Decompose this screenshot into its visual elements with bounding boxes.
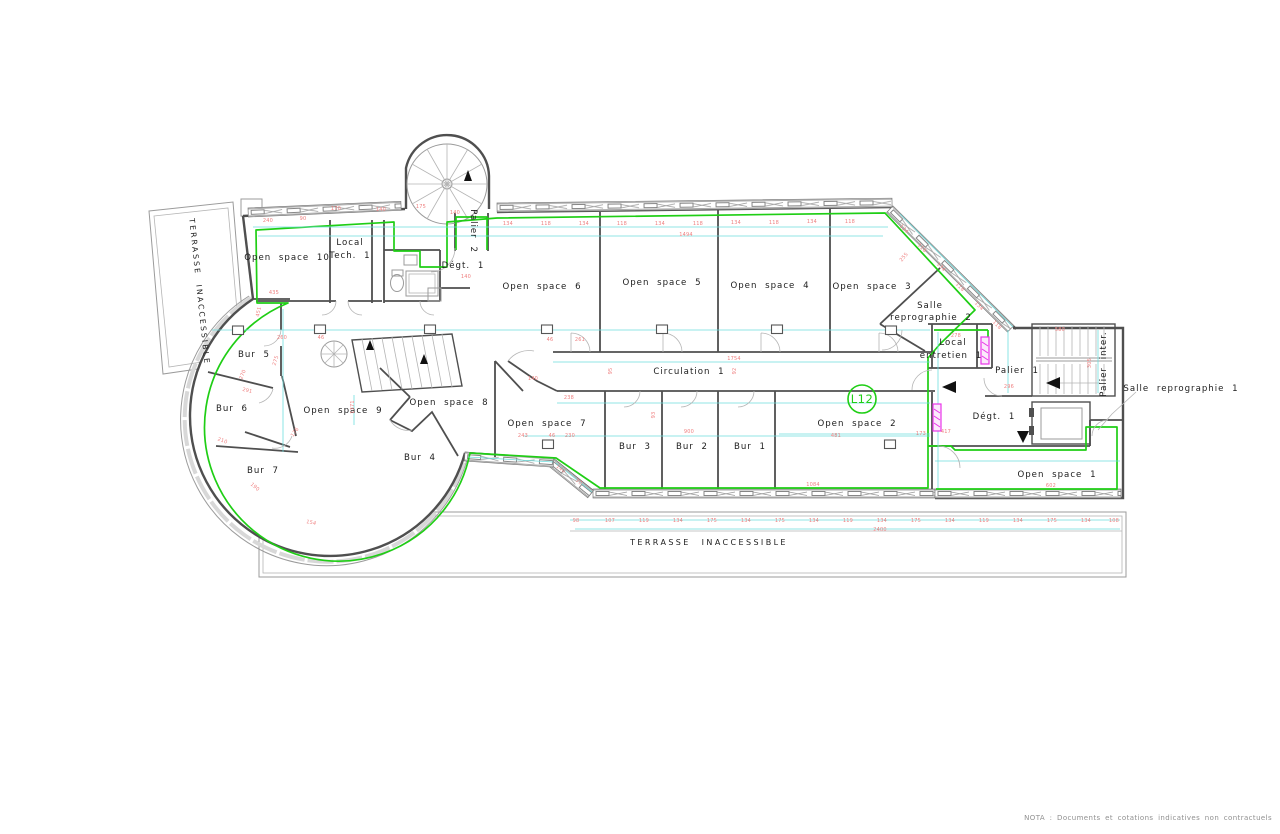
label-bur-6: Bur 6 [216, 404, 248, 414]
label-degagement-1: Dégt. 1 [973, 411, 1016, 422]
dim-label: 134 [503, 221, 513, 227]
dim-label: 173 [916, 431, 926, 437]
dim-label: 119 [639, 518, 649, 524]
stair-direction-arrow-tower [464, 170, 472, 181]
dim-label: 175 [775, 518, 785, 524]
label-degagement-2: Dégt. 1 [442, 260, 485, 271]
label-terrasse-inaccessible-left: TERRASSE INACCESSIBLE [187, 217, 211, 366]
dim-label: 134 [945, 518, 955, 524]
label-palier-1: Palier 1 [995, 366, 1039, 376]
dim-label: 93 [651, 412, 657, 419]
lift-door-mark-1 [1029, 408, 1034, 417]
column [885, 440, 896, 449]
dim-label: 260 [277, 335, 287, 341]
label-palier-inter: Palier inter. [1099, 331, 1109, 396]
dim-label: 481 [831, 433, 841, 439]
column [772, 325, 783, 334]
counter [406, 271, 438, 296]
dim-label: 175 [911, 518, 921, 524]
door-arc-os8 [508, 350, 534, 361]
label-open-space-7: Open space 7 [507, 419, 586, 429]
window-band-bottom-1 [593, 489, 935, 498]
column [542, 325, 553, 334]
column [543, 440, 554, 449]
dim-label: 118 [845, 219, 855, 225]
dim-label: 118 [769, 220, 779, 226]
dim-label: 305 [1087, 358, 1093, 368]
dim-label: 1494 [679, 232, 693, 238]
label-bur-3: Bur 3 [619, 442, 651, 452]
dim-label: 175 [707, 518, 717, 524]
label-open-space-2: Open space 2 [817, 419, 896, 429]
floor-plan-svg: Open space 10LocalTech. 1Dégt. 1Palier 2… [0, 0, 1280, 834]
label-local-entretien-1-line1: Local [939, 338, 966, 348]
column [233, 326, 244, 335]
dim-label: 140 [450, 210, 460, 216]
column [657, 325, 668, 334]
nota-text: NOTA : Documents et cotations indicative… [1024, 814, 1272, 822]
entry-arrow-left [942, 381, 956, 393]
dim-label: 602 [1046, 483, 1056, 489]
cabinet [428, 288, 441, 301]
dim-label: 118 [617, 221, 627, 227]
label-terrasse-inaccessible-bottom: TERRASSE INACCESSIBLE [629, 538, 788, 547]
label-l12-badge: L12 [851, 392, 874, 406]
window-band-bottom-2 [935, 489, 1121, 498]
door-arcs-right [882, 330, 1108, 468]
label-open-space-4: Open space 4 [730, 281, 809, 291]
label-open-space-3: Open space 3 [832, 282, 911, 292]
dim-label: 118 [541, 221, 551, 227]
dim-label: 119 [843, 518, 853, 524]
dim-label: 107 [605, 518, 615, 524]
wall-stair-tower [406, 135, 489, 209]
dim-label: 140 [461, 274, 471, 280]
toilet-fixture [391, 275, 404, 292]
label-bur-1: Bur 1 [734, 442, 766, 452]
dim-label: 98 [573, 518, 580, 524]
label-open-space-6: Open space 6 [502, 282, 581, 292]
dim-label: 2400 [873, 527, 887, 533]
label-open-space-1: Open space 1 [1017, 470, 1096, 480]
label-open-space-9: Open space 9 [303, 406, 382, 416]
label-bur-5: Bur 5 [238, 350, 270, 360]
label-bur-2: Bur 2 [676, 442, 708, 452]
door-arcs-corridor-top [571, 333, 898, 352]
dim-label: 435 [269, 290, 279, 296]
door-arc-os2 [912, 370, 932, 390]
dim-label: 118 [693, 221, 703, 227]
dim-label: 261 [575, 337, 585, 343]
main-stair-treads [362, 334, 452, 391]
dim-label: 134 [807, 219, 817, 225]
dim-label: 134 [741, 518, 751, 524]
dim-label: 175 [416, 204, 426, 210]
dim-label: 95 [608, 368, 614, 375]
dim-label: 417 [941, 429, 951, 435]
dim-label: 175 [1047, 518, 1057, 524]
label-local-entretien-1-line2: entretien 1 [920, 351, 982, 361]
dim-label: 238 [564, 395, 574, 401]
column [425, 325, 436, 334]
leader-line-salle-repro-1 [1098, 392, 1136, 430]
window-band-top-main [497, 198, 892, 212]
door-arcs-bur [624, 391, 754, 407]
dim-label: 46 [549, 433, 556, 439]
fixtures-layer [391, 255, 442, 301]
label-bur-7: Bur 7 [247, 466, 279, 476]
dim-label: 134 [877, 518, 887, 524]
dim-label: 134 [731, 220, 741, 226]
label-salle-reprographie-2-line2: reprographie 2 [890, 313, 972, 323]
dim-label: 140 [528, 376, 538, 382]
label-local-tech-1-line2: Tech. 1 [328, 251, 370, 261]
lift-cab [1041, 408, 1082, 439]
dim-label: 108 [1109, 518, 1119, 524]
label-open-space-5: Open space 5 [622, 278, 701, 288]
dim-label: 46 [318, 335, 325, 341]
dim-label: 134 [1013, 518, 1023, 524]
dim-label: 255 [899, 252, 910, 264]
dim-label: 90 [300, 216, 307, 222]
dim-label: 240 [263, 218, 273, 224]
label-open-space-10: Open space 10 [244, 253, 330, 263]
label-salle-reprographie-2-line1: Salle [917, 301, 943, 311]
label-open-space-8: Open space 8 [409, 398, 488, 408]
counter-inner [409, 274, 435, 293]
dim-label: 134 [809, 518, 819, 524]
dim-label: 134 [579, 221, 589, 227]
dim-label: 140 [376, 207, 386, 213]
lift-door-mark-2 [1029, 426, 1034, 435]
label-local-tech-1-line1: Local [336, 238, 363, 248]
column [315, 325, 326, 334]
entry-arrow-down [1017, 431, 1029, 443]
dim-label: 230 [565, 433, 575, 439]
sink-fixture [404, 255, 417, 265]
dim-label: 134 [1081, 518, 1091, 524]
dim-label: 580 [1055, 327, 1065, 333]
dim-label: 92 [732, 368, 738, 375]
label-bur-4: Bur 4 [404, 453, 436, 463]
round-room-fill [190, 299, 465, 556]
dim-label: 1084 [806, 482, 820, 488]
dim-label: 134 [673, 518, 683, 524]
wall-salle-repro1 [1090, 420, 1123, 446]
dim-label: 170 [331, 206, 341, 212]
dim-label: 134 [655, 221, 665, 227]
dim-label: 278 [951, 333, 961, 339]
label-salle-reprographie-1: Salle reprographie 1 [1123, 384, 1238, 394]
label-circulation-1: Circulation 1 [653, 367, 724, 377]
dim-label: 900 [684, 429, 694, 435]
dim-label: 296 [1004, 384, 1014, 390]
dim-label: 1754 [727, 356, 741, 362]
dim-label: 119 [979, 518, 989, 524]
dim-label: 46 [547, 337, 554, 343]
dim-label: 1371 [350, 400, 356, 414]
dim-label: 243 [518, 433, 528, 439]
label-palier-2: Palier 2 [468, 209, 478, 253]
column [886, 326, 897, 335]
